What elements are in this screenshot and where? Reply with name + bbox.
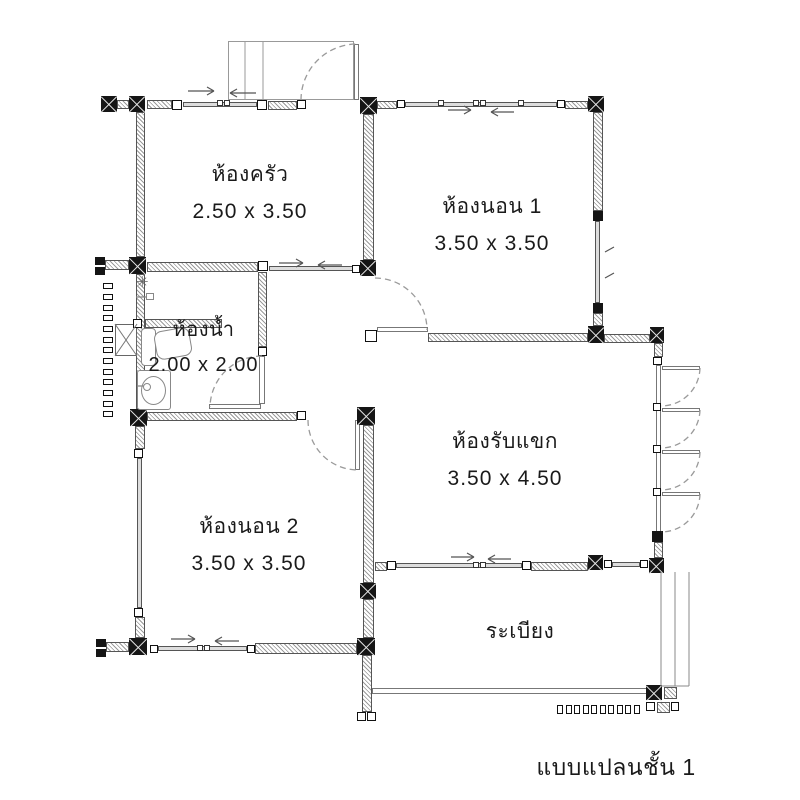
pier [96, 639, 106, 647]
wall-segment [593, 313, 603, 326]
wall-jamb [297, 100, 306, 109]
door-leaf [209, 404, 261, 409]
wall-segment [664, 687, 677, 699]
wall-segment [117, 100, 129, 109]
drain-block [103, 315, 113, 321]
drain-block [103, 390, 113, 396]
column [360, 260, 376, 276]
room-name: ห้องนอน 1 [406, 190, 578, 223]
column [357, 638, 375, 655]
pier [95, 257, 105, 265]
drain-block [103, 369, 113, 375]
wall-jamb [352, 265, 360, 273]
drain-block [103, 305, 113, 311]
room-kitchen-label: ห้องครัว 2.50 x 3.50 [164, 158, 336, 224]
door-leaf [662, 408, 700, 412]
drain-block [103, 347, 113, 353]
drain-block [103, 358, 113, 364]
wall-jamb [557, 100, 565, 108]
drain-block [103, 411, 113, 417]
wall-jamb [653, 357, 662, 365]
room-size: 3.50 x 3.50 [406, 232, 578, 256]
door-leaf [662, 450, 700, 454]
window-mullion [217, 100, 223, 106]
wall-jamb [247, 645, 255, 653]
window-mullion [197, 645, 203, 651]
room-name: ระเบียง [445, 615, 595, 648]
door-leaf [377, 327, 428, 332]
room-name: ห้องนอน 2 [163, 510, 335, 543]
drain-block [617, 705, 623, 714]
room-name: ห้องน้ำ [126, 313, 281, 345]
wall-jamb [646, 702, 655, 711]
room-living-label: ห้องรับแขก 3.50 x 4.50 [419, 425, 591, 491]
drain-block [608, 705, 614, 714]
drain-block [103, 401, 113, 407]
drain-block [103, 283, 113, 289]
door-leaf [662, 366, 700, 370]
window-mullion [438, 100, 444, 106]
wall-segment [147, 412, 297, 421]
wall-segment [136, 112, 145, 257]
wall-jamb [593, 303, 603, 313]
wall-segment [377, 101, 397, 109]
room-size: 2.00 x 2.00 [126, 354, 281, 377]
room-size: 2.50 x 3.50 [164, 200, 336, 224]
column [129, 638, 147, 655]
wall-segment [654, 542, 663, 558]
wall-jamb [365, 330, 377, 342]
wall-segment [428, 333, 588, 342]
window-mullion [473, 562, 479, 568]
balcony-slab-edge [372, 688, 659, 694]
window-mullion [480, 100, 486, 106]
wall-segment [565, 101, 588, 109]
room-bedroom1-label: ห้องนอน 1 3.50 x 3.50 [406, 190, 578, 256]
door-leaf [354, 44, 359, 100]
door-leaf [355, 420, 360, 470]
room-size: 3.50 x 4.50 [419, 467, 591, 491]
wall-segment [268, 101, 297, 110]
drain-block [574, 705, 580, 714]
drain-block [634, 705, 640, 714]
annotations-layer [0, 0, 800, 800]
wall-jamb [671, 702, 679, 711]
room-size: 3.50 x 3.50 [163, 552, 335, 576]
column [588, 326, 604, 343]
floor-plan: ✳ [0, 0, 800, 800]
drain-block [625, 705, 631, 714]
wall-jamb [653, 403, 661, 411]
pier [95, 267, 105, 275]
window-mullion [518, 100, 524, 106]
room-bedroom2-label: ห้องนอน 2 3.50 x 3.50 [163, 510, 335, 576]
wall-jamb [357, 712, 366, 721]
drain-block [583, 705, 589, 714]
wall-jamb [134, 608, 143, 617]
column [646, 685, 662, 700]
wall-segment [531, 562, 588, 571]
wall-segment [363, 599, 374, 638]
wall-jamb [522, 561, 531, 570]
wall-segment [135, 426, 145, 449]
shower-valve [146, 293, 154, 300]
window-mullion [224, 100, 230, 106]
column [360, 97, 377, 114]
column [129, 96, 145, 112]
porch-outline [228, 41, 354, 100]
window-mullion [480, 562, 486, 568]
shower-drain-icon: ✳ [136, 273, 149, 291]
drain-block [103, 294, 113, 300]
wall-jamb [172, 100, 182, 110]
window-mullion [473, 100, 479, 106]
wall-segment [363, 425, 374, 583]
wall-segment [106, 642, 129, 652]
window [612, 562, 640, 567]
wall-jamb [257, 100, 267, 110]
wall-segment [604, 334, 650, 343]
door-leaf [662, 492, 700, 496]
drain-block [103, 379, 113, 385]
plan-caption: แบบแปลนชั้น 1 [511, 750, 721, 786]
wall-jamb [604, 560, 612, 568]
wall-segment [375, 562, 387, 571]
wall-jamb [653, 488, 661, 496]
column [650, 327, 664, 343]
wall-jamb [652, 531, 663, 542]
wall-segment [654, 343, 663, 357]
wall-jamb [653, 445, 661, 453]
wall-jamb [134, 449, 143, 458]
wall-segment [135, 617, 145, 638]
column [588, 555, 603, 570]
column [360, 583, 376, 599]
room-name: ห้องครัว [164, 158, 336, 191]
wall-jamb [593, 211, 603, 221]
window [595, 221, 600, 303]
column [588, 96, 604, 112]
column [101, 96, 117, 112]
drain-block [103, 326, 113, 332]
drain-block [600, 705, 606, 714]
sink-faucet [143, 383, 151, 391]
wall-segment [657, 702, 670, 713]
drain-block [557, 705, 563, 714]
room-name: ห้องรับแขก [419, 425, 591, 458]
sliding-door [269, 266, 353, 271]
drain-block [103, 337, 113, 343]
column [649, 558, 664, 573]
wall-segment [363, 114, 374, 260]
sliding-door [396, 563, 522, 568]
drain-block [566, 705, 572, 714]
wall-jamb [387, 561, 396, 570]
column [357, 407, 375, 425]
wall-segment [362, 655, 372, 712]
wall-jamb [397, 100, 405, 108]
room-balcony-label: ระเบียง [445, 615, 595, 648]
wall-segment [147, 262, 258, 272]
wall-segment [593, 112, 603, 211]
wall-segment [147, 100, 172, 109]
pier [96, 649, 106, 657]
column [130, 409, 147, 426]
drain-block [591, 705, 597, 714]
wall-segment [255, 643, 357, 654]
window-mullion [204, 645, 210, 651]
window [137, 458, 142, 608]
wall-jamb [297, 411, 306, 420]
room-bathroom-label: ห้องน้ำ 2.00 x 2.00 [126, 313, 281, 377]
wall-jamb [150, 645, 158, 653]
balcony-steps [661, 572, 689, 686]
wall-jamb [640, 560, 648, 568]
wall-jamb [367, 712, 376, 721]
column [129, 257, 146, 274]
wall-segment [105, 260, 129, 270]
wall-jamb [258, 261, 268, 271]
